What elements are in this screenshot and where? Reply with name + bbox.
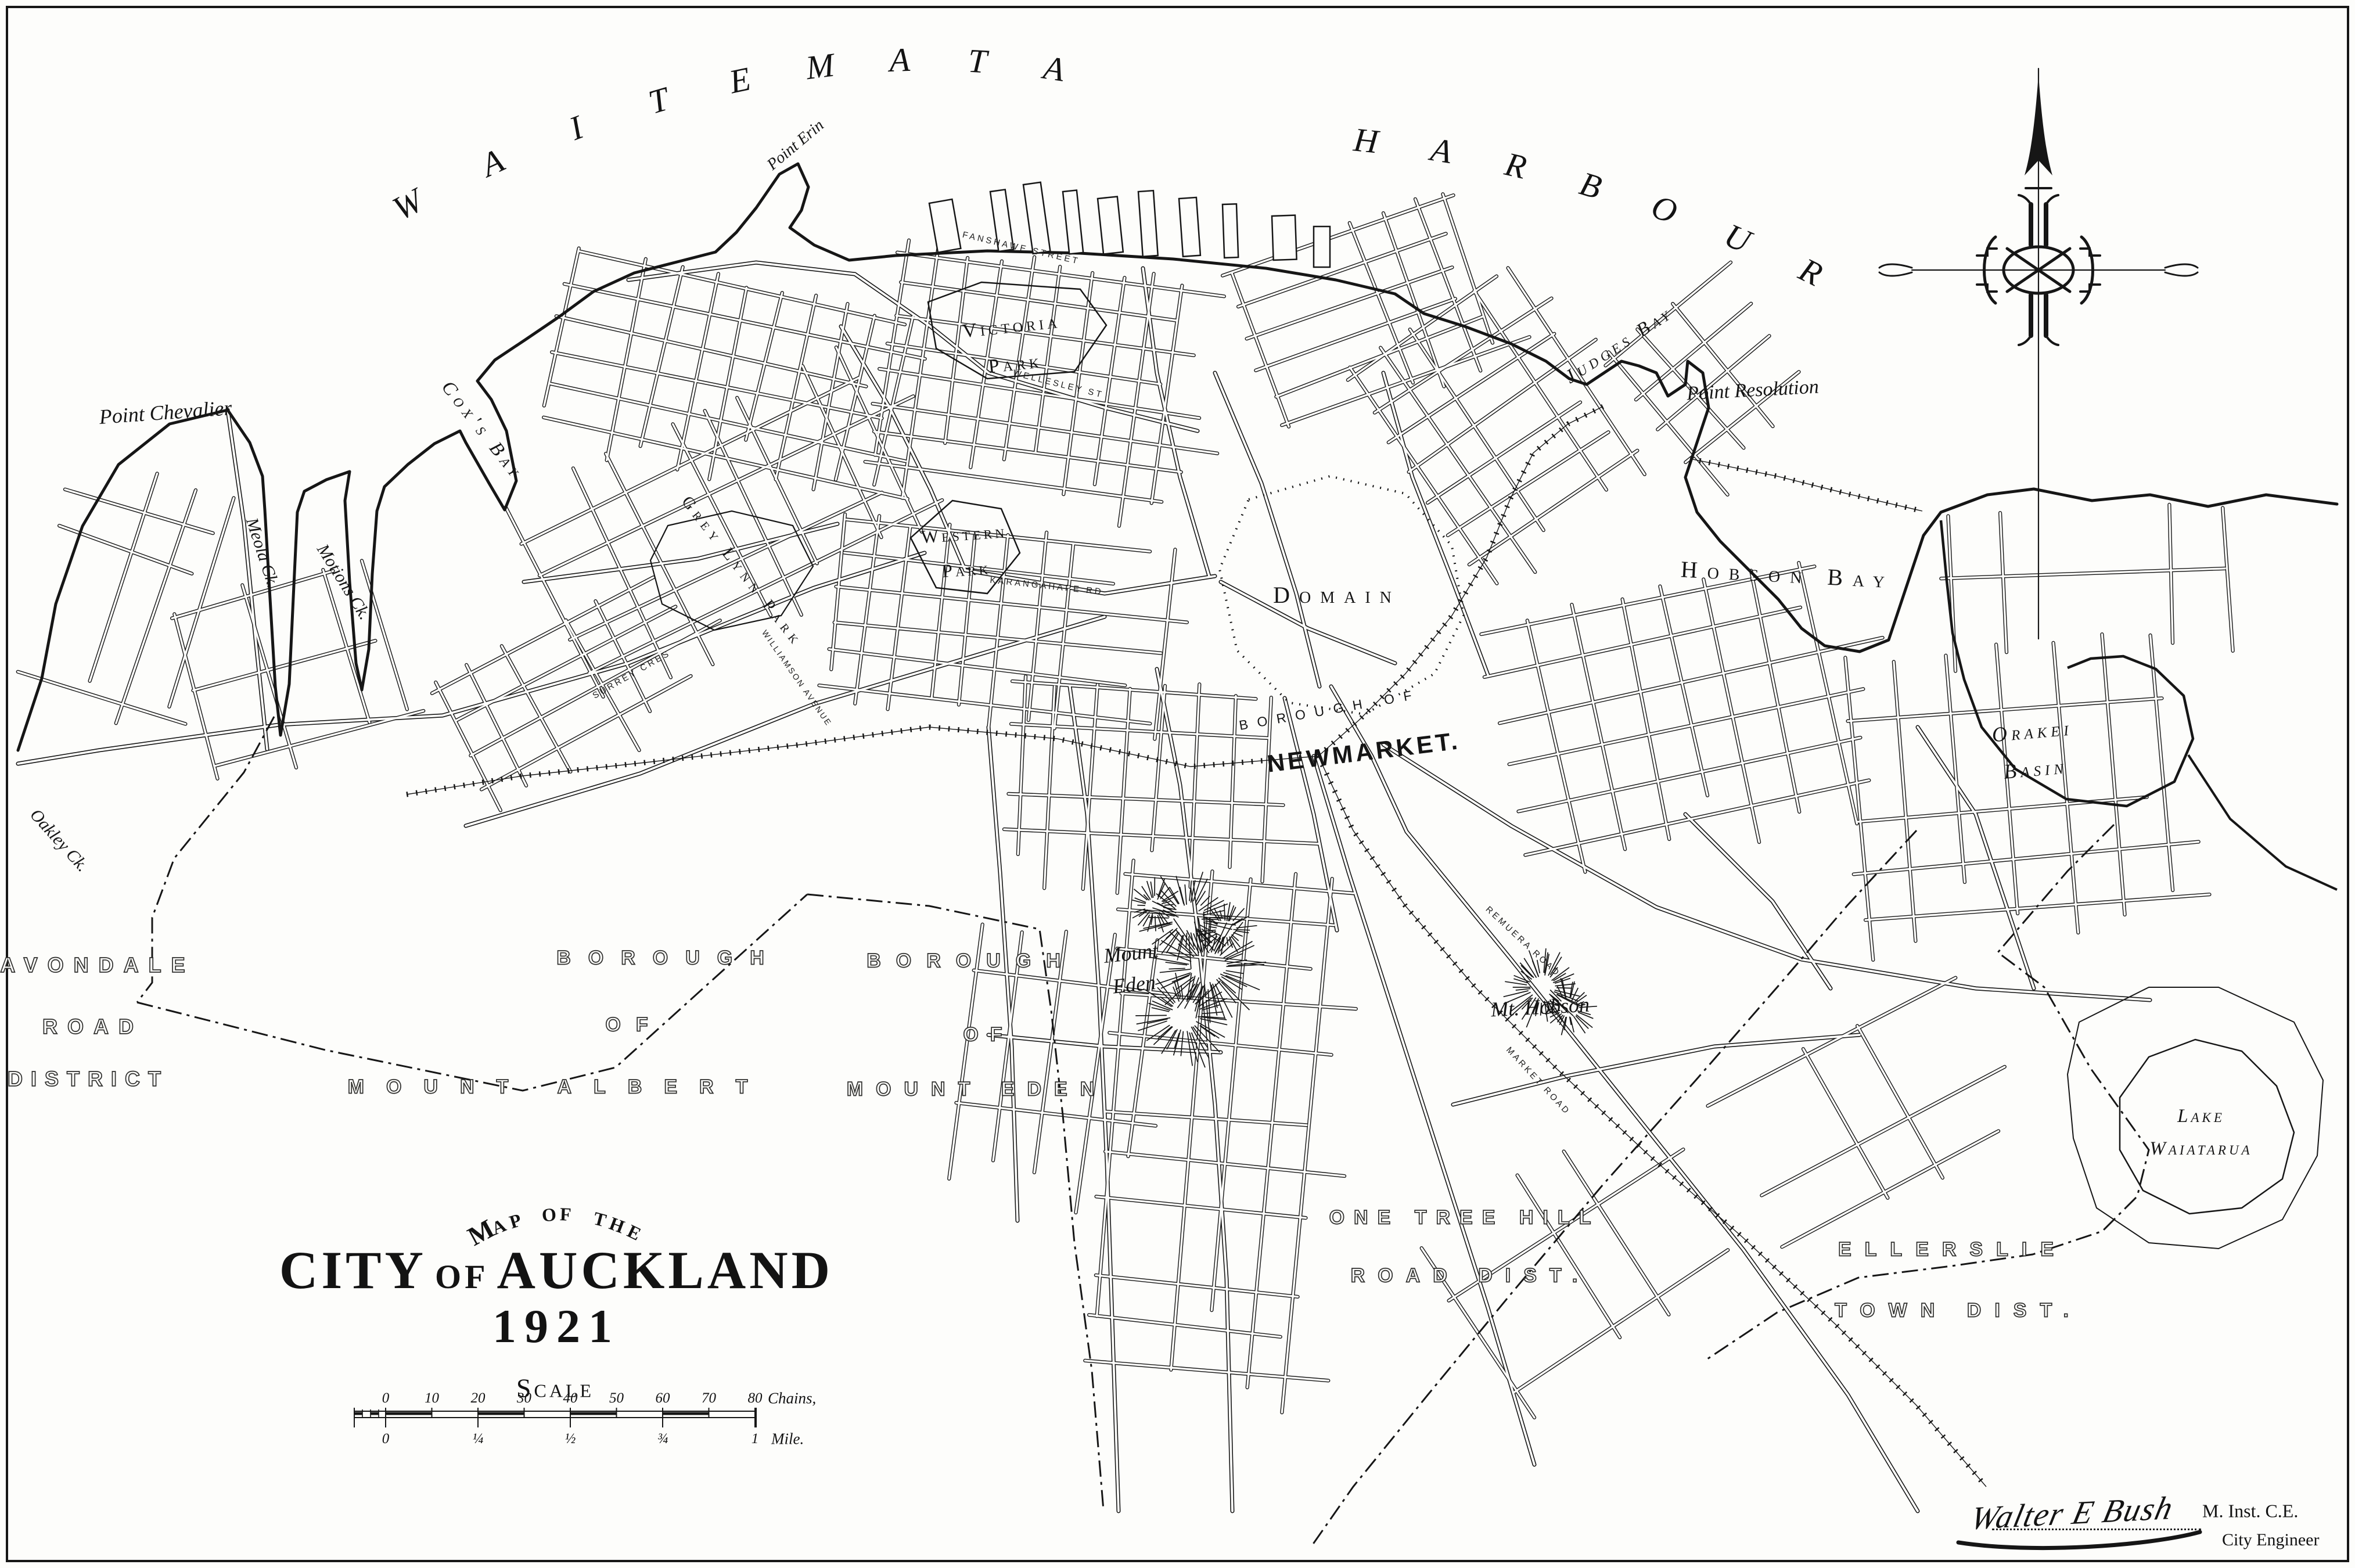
ellerslie-1-label: ELLERSLIE — [1838, 1235, 2067, 1265]
chains-tick: 20 — [471, 1390, 486, 1407]
avondale-3-label: DISTRICT — [8, 1063, 169, 1095]
mt-hobson-label: Mt. Hobson — [1490, 989, 1591, 1026]
mile-tick: 0 — [382, 1431, 390, 1447]
chains-tick: 10 — [425, 1390, 439, 1407]
mtalbert-2-label: OF — [605, 1010, 663, 1040]
title-of: OF — [427, 1258, 497, 1296]
compass-rose north-arrow-icon — [1879, 69, 2198, 639]
mile-tick: ¼ — [473, 1431, 484, 1447]
domain-label: Domain — [1273, 578, 1401, 613]
chains-unit-label: Chains, — [768, 1390, 816, 1408]
page-title: CITYOFAUCKLAND — [279, 1239, 833, 1301]
onetreehill-2-label: ROAD DIST. — [1351, 1261, 1591, 1291]
orakei-basin-label: Orakei Basin — [1990, 709, 2077, 791]
title-city: CITY — [279, 1240, 427, 1300]
title-auckland: AUCKLAND — [497, 1240, 834, 1300]
onetreehill-1-label: ONE TREE HILL — [1329, 1203, 1601, 1233]
title-year: 1921 — [492, 1299, 620, 1354]
mount-eden-hill-label: Mount Eden — [1102, 934, 1163, 1002]
signature-dotted-line — [1992, 1529, 2201, 1530]
engineer-role: City Engineer — [2222, 1530, 2319, 1550]
engineer-credential: M. Inst. C.E. — [2202, 1501, 2298, 1522]
lake-waiatarua-label: Lake Waiatarua — [2149, 1100, 2252, 1165]
mile-tick: ¾ — [657, 1431, 668, 1447]
mile-tick: ½ — [565, 1431, 576, 1447]
chains-tick: 50 — [609, 1390, 624, 1407]
avondale-1-label: AVONDALE — [0, 950, 195, 981]
mtalbert-3-label: MOUNT ALBERT — [348, 1073, 770, 1102]
chains-tick: 40 — [563, 1390, 578, 1407]
chains-tick: 60 — [656, 1390, 670, 1407]
district-boundaries — [137, 717, 2149, 1545]
scale-bar — [354, 1408, 756, 1427]
mtalbert-1-label: BOROUGH — [556, 944, 782, 973]
mteden-1-label: BOROUGH — [867, 947, 1076, 976]
avondale-2-label: ROAD — [42, 1011, 143, 1042]
chains-tick: 80 — [748, 1390, 763, 1407]
mteden-3-label: MOUNT EDEN — [847, 1075, 1108, 1105]
mile-unit-label: Mile. — [771, 1430, 804, 1448]
chains-tick: 30 — [517, 1390, 531, 1407]
ellerslie-2-label: TOWN DIST. — [1835, 1296, 2082, 1326]
chains-tick: 0 — [382, 1390, 390, 1407]
map-sheet: WAITEMATAHARBOURMap of thePoint ErinPoin… — [0, 0, 2355, 1568]
chains-tick: 70 — [702, 1390, 716, 1407]
mteden-2-label: OF — [963, 1020, 1013, 1050]
mile-tick: 1 — [752, 1431, 759, 1447]
